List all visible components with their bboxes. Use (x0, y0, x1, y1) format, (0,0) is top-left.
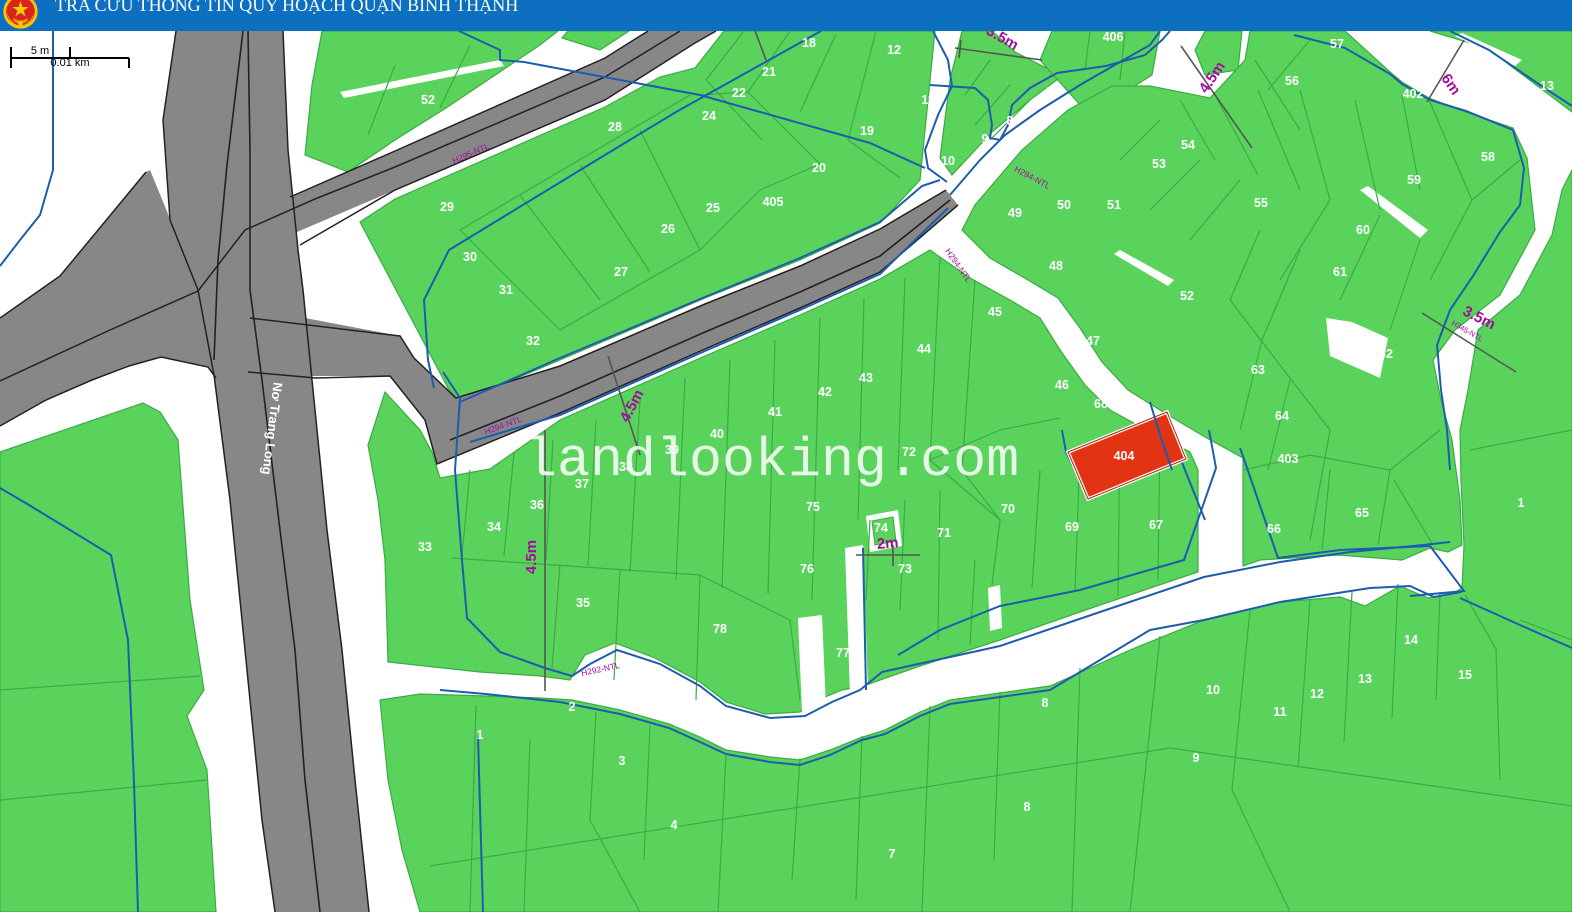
svg-text:74: 74 (874, 521, 888, 535)
svg-text:403: 403 (1278, 452, 1299, 466)
svg-text:71: 71 (937, 526, 951, 540)
svg-text:73: 73 (898, 562, 912, 576)
svg-text:8: 8 (1007, 114, 1014, 128)
svg-text:10: 10 (1206, 683, 1220, 697)
svg-text:76: 76 (800, 562, 814, 576)
svg-text:44: 44 (917, 342, 931, 356)
svg-text:13: 13 (1358, 672, 1372, 686)
svg-text:70: 70 (1001, 502, 1015, 516)
svg-text:22: 22 (732, 86, 746, 100)
svg-text:36: 36 (530, 498, 544, 512)
svg-text:402: 402 (1403, 87, 1424, 101)
svg-text:10: 10 (941, 154, 955, 168)
svg-text:35: 35 (576, 596, 590, 610)
svg-text:61: 61 (1333, 265, 1347, 279)
svg-text:57: 57 (1330, 37, 1344, 51)
svg-text:11: 11 (921, 93, 934, 107)
svg-text:4: 4 (671, 818, 678, 832)
svg-text:58: 58 (1481, 150, 1495, 164)
svg-text:41: 41 (768, 405, 782, 419)
svg-text:28: 28 (608, 120, 622, 134)
svg-text:50: 50 (1057, 198, 1071, 212)
svg-text:42: 42 (818, 385, 832, 399)
svg-text:31: 31 (499, 283, 513, 297)
svg-text:4.5m: 4.5m (523, 540, 540, 574)
svg-text:405: 405 (763, 195, 784, 209)
svg-text:39: 39 (665, 443, 679, 457)
svg-text:13: 13 (1540, 79, 1554, 93)
svg-text:32: 32 (526, 334, 540, 348)
svg-text:75: 75 (806, 500, 820, 514)
svg-text:49: 49 (1008, 206, 1022, 220)
svg-text:33: 33 (418, 540, 432, 554)
svg-text:69: 69 (1065, 520, 1079, 534)
svg-text:37: 37 (575, 477, 589, 491)
svg-text:43: 43 (859, 371, 873, 385)
svg-text:47: 47 (1086, 334, 1100, 348)
svg-text:1: 1 (1518, 496, 1525, 510)
svg-text:65: 65 (1355, 506, 1369, 520)
svg-text:27: 27 (614, 265, 628, 279)
svg-text:66: 66 (1267, 522, 1281, 536)
svg-text:7: 7 (889, 847, 896, 861)
svg-text:21: 21 (762, 65, 776, 79)
svg-text:9: 9 (982, 132, 989, 146)
svg-text:48: 48 (1049, 259, 1063, 273)
svg-text:404: 404 (1114, 449, 1135, 463)
svg-text:5 m: 5 m (31, 45, 49, 57)
svg-text:24: 24 (702, 109, 716, 123)
svg-text:1: 1 (477, 728, 484, 742)
svg-text:60: 60 (1356, 223, 1370, 237)
svg-text:68: 68 (1094, 397, 1108, 411)
svg-text:78: 78 (713, 622, 727, 636)
svg-text:67: 67 (1149, 518, 1163, 532)
svg-text:54: 54 (1181, 138, 1195, 152)
svg-text:11: 11 (1273, 705, 1286, 719)
svg-text:77: 77 (836, 646, 850, 660)
svg-text:34: 34 (487, 520, 501, 534)
svg-text:19: 19 (860, 124, 874, 138)
svg-text:52: 52 (1180, 289, 1194, 303)
svg-text:406: 406 (1103, 30, 1124, 44)
svg-text:2: 2 (569, 700, 576, 714)
svg-text:25: 25 (706, 201, 720, 215)
svg-text:29: 29 (440, 200, 454, 214)
svg-text:20: 20 (812, 161, 826, 175)
svg-text:18: 18 (802, 36, 816, 50)
svg-text:64: 64 (1275, 409, 1289, 423)
svg-text:12: 12 (1310, 687, 1324, 701)
svg-text:72: 72 (902, 445, 916, 459)
svg-text:30: 30 (463, 250, 477, 264)
svg-text:45: 45 (988, 305, 1002, 319)
svg-text:53: 53 (1152, 157, 1166, 171)
svg-text:7: 7 (1047, 85, 1054, 99)
svg-text:15: 15 (1458, 668, 1472, 682)
svg-text:8: 8 (1024, 800, 1031, 814)
svg-text:3: 3 (619, 754, 626, 768)
svg-text:landlooking.com: landlooking.com (524, 429, 1019, 492)
svg-text:38: 38 (619, 460, 633, 474)
svg-text:59: 59 (1407, 173, 1421, 187)
svg-text:62: 62 (1379, 347, 1393, 361)
svg-text:12: 12 (887, 43, 901, 57)
svg-text:26: 26 (661, 222, 675, 236)
svg-text:63: 63 (1251, 363, 1265, 377)
svg-text:52: 52 (421, 93, 435, 107)
svg-text:0.01 km: 0.01 km (50, 57, 89, 69)
svg-text:51: 51 (1107, 198, 1121, 212)
svg-text:40: 40 (710, 427, 724, 441)
svg-text:56: 56 (1285, 74, 1299, 88)
svg-text:46: 46 (1055, 378, 1069, 392)
svg-text:9: 9 (1193, 751, 1200, 765)
svg-text:8: 8 (1042, 696, 1049, 710)
svg-text:2m: 2m (876, 534, 899, 553)
svg-text:55: 55 (1254, 196, 1268, 210)
svg-text:14: 14 (1404, 633, 1418, 647)
